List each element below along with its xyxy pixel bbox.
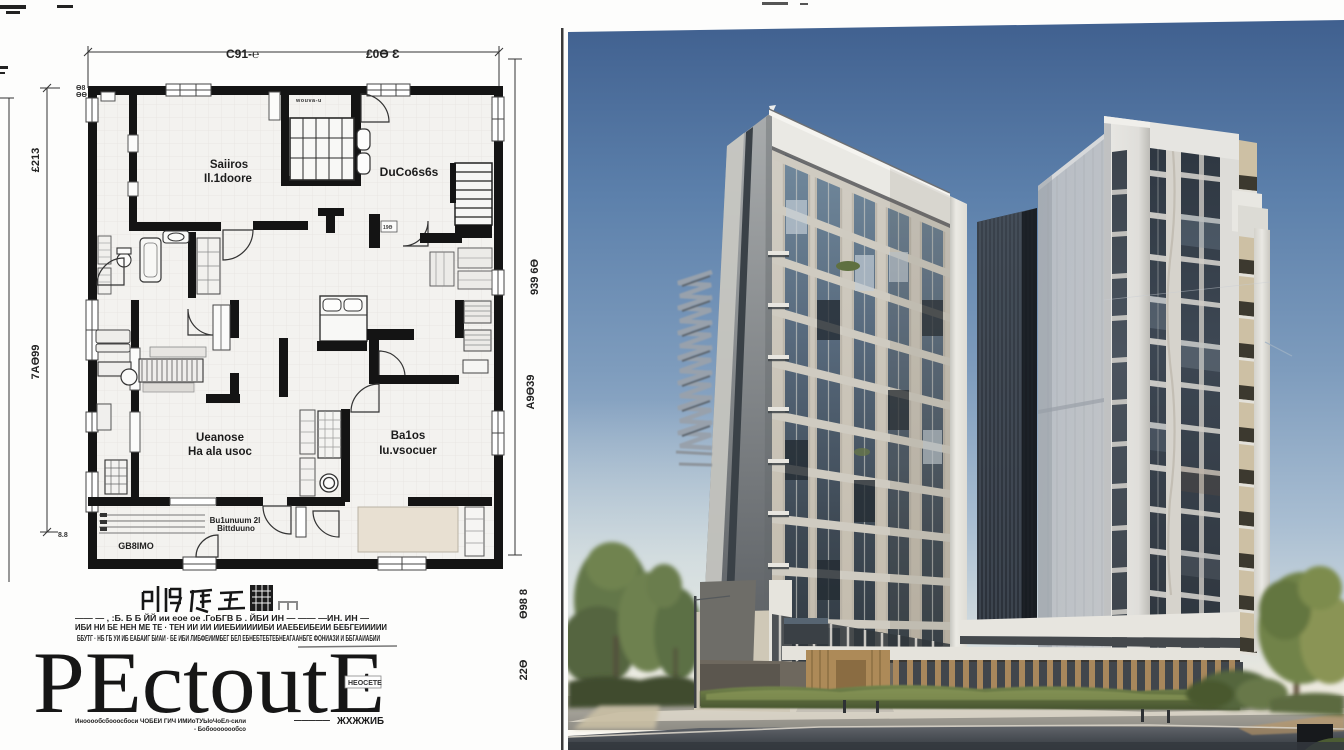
svg-text:GB8IMO: GB8IMO: [118, 541, 154, 551]
svg-text:Iu.vsocuer: Iu.vsocuer: [379, 445, 437, 457]
svg-text:A9Ɵ39: A9Ɵ39: [525, 375, 537, 410]
svg-text:£213: £213: [30, 148, 42, 172]
svg-text:£0Ɵ Ɛ: £0Ɵ Ɛ: [366, 47, 400, 61]
svg-text:—————: —————: [294, 715, 330, 725]
svg-text:Ɵ98 8: Ɵ98 8: [518, 589, 530, 619]
svg-text:8.8: 8.8: [58, 532, 68, 539]
svg-text:Il.1doore: Il.1doore: [204, 173, 252, 185]
svg-text:Ha ala usoc: Ha ala usoc: [188, 446, 253, 458]
svg-text:939 6Ɵ: 939 6Ɵ: [529, 259, 541, 296]
svg-text:wouva-u: wouva-u: [295, 98, 322, 104]
svg-text:ЖХЖЖИБ: ЖХЖЖИБ: [336, 715, 384, 727]
svg-text:Bittduuno: Bittduuno: [217, 524, 255, 533]
svg-text:Ueanose: Ueanose: [196, 432, 244, 444]
svg-text:НЕОСЕТЕ: НЕОСЕТЕ: [348, 680, 382, 687]
svg-text:19Ɵ: 19Ɵ: [383, 225, 393, 231]
svg-text:Ɵ8: Ɵ8: [76, 85, 85, 92]
svg-text:22Ɵ: 22Ɵ: [518, 659, 530, 680]
svg-text:Saiiros: Saiiros: [210, 159, 248, 171]
svg-text:—— — , :Б. Б Б ЙЙ ии еое о: —— — , :Б. Б Б ЙЙ ии еое ое .ГоБГВ Б . Й…: [75, 614, 369, 623]
svg-text:ИБИ НИ БЕ НЕН МЕ ТЕ · ТЕН: ИБИ НИ БЕ НЕН МЕ ТЕ · ТЕН ИИ ИИ ИИЕБИИИИ…: [75, 623, 387, 632]
svg-text:Инооообсбооосбоси ЧОБЕИ ГИЧ ИМ: Инооообсбооосбоси ЧОБЕИ ГИЧ ИМИоТУЫоЧоЕл…: [75, 717, 246, 725]
svg-text:C91-℮: C91-℮: [226, 47, 259, 61]
svg-text:Ba1os: Ba1os: [391, 430, 426, 442]
svg-text:DuCo6s6s: DuCo6s6s: [380, 165, 439, 179]
svg-text:- Бобоооооообсо: - Бобоооооообсо: [194, 725, 246, 733]
svg-text:ƟƟ: ƟƟ: [76, 92, 87, 99]
svg-text:7AƟ99: 7AƟ99: [30, 345, 42, 380]
